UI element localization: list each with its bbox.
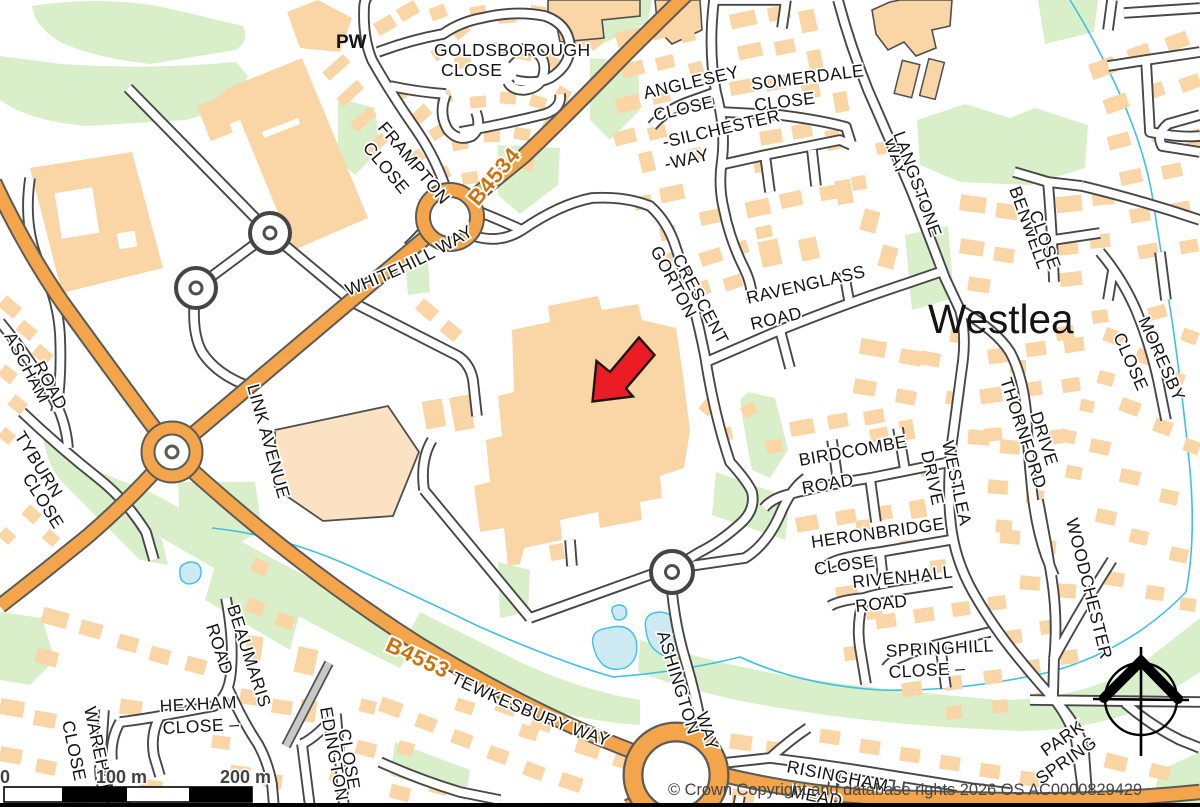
svg-text:CLOSE –: CLOSE – xyxy=(888,658,966,682)
svg-text:GOLDSBOROUGH: GOLDSBOROUGH xyxy=(434,40,591,60)
svg-text:Westlea: Westlea xyxy=(928,296,1074,342)
svg-text:0: 0 xyxy=(0,767,10,787)
svg-text:200 m: 200 m xyxy=(220,767,271,787)
svg-text:100 m: 100 m xyxy=(96,767,147,787)
svg-text:PW: PW xyxy=(336,32,367,53)
svg-text:© Crown Copyright and database: © Crown Copyright and database rights 20… xyxy=(668,781,1142,799)
svg-text:HEXHAM: HEXHAM xyxy=(159,692,237,716)
svg-text:CLOSE –: CLOSE – xyxy=(162,714,240,738)
svg-text:CLOSE: CLOSE xyxy=(441,60,502,80)
